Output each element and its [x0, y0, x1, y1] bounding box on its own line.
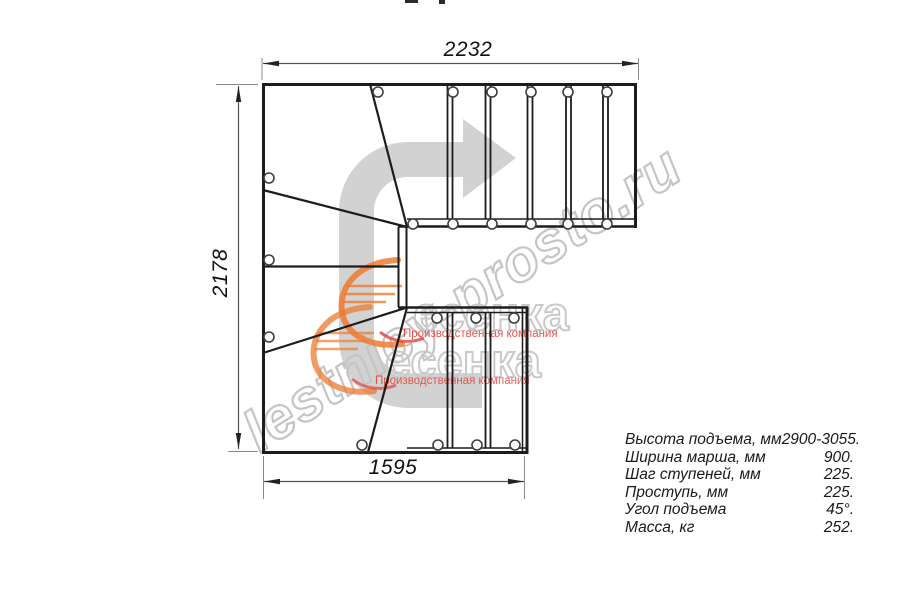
staircase-drawing-page: lestnicy-prosto.ru есенка Производственн… — [0, 0, 900, 600]
spec-value: 225. — [824, 484, 854, 502]
spec-value: 900. — [824, 449, 854, 467]
spec-label: Проступь, мм — [625, 484, 728, 502]
spec-value: 252. — [824, 519, 854, 537]
spec-label: Ширина марша, мм — [625, 449, 766, 467]
spec-label: Высота подъема, мм — [625, 431, 782, 449]
spec-row: Угол подъема 45°. — [625, 501, 854, 519]
dimension-bottom-label: 1595 — [353, 456, 433, 480]
spec-value: 225. — [824, 466, 854, 484]
spec-label: Угол подъема — [625, 501, 726, 519]
newel-post — [399, 227, 407, 307]
spec-value: 45°. — [826, 501, 854, 519]
dimension-top-label: 2232 — [428, 38, 508, 62]
spec-row: Высота подъема, мм 2900-3055. — [625, 431, 854, 449]
spec-row: Ширина марша, мм 900. — [625, 449, 854, 467]
spec-row: Шаг ступеней, мм 225. — [625, 466, 854, 484]
specs-table: Высота подъема, мм 2900-3055. Ширина мар… — [625, 431, 854, 537]
spec-label: Шаг ступеней, мм — [625, 466, 761, 484]
spec-value: 2900-3055. — [782, 431, 860, 449]
spec-row: Масса, кг 252. — [625, 519, 854, 537]
spec-label: Масса, кг — [625, 519, 694, 537]
watermark-layer: lestnicy-prosto.ru есенка Производственн… — [232, 133, 693, 464]
dimension-left-label: 2178 — [209, 233, 233, 313]
spec-row: Проступь, мм 225. — [625, 484, 854, 502]
